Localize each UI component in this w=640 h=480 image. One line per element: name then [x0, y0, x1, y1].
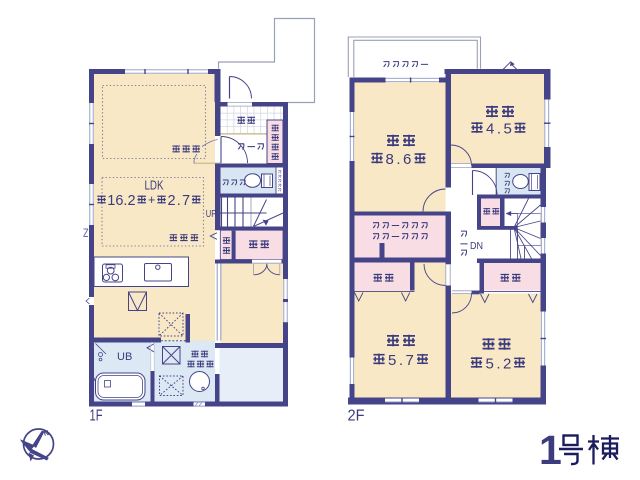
svg-text:2F: 2F	[348, 408, 365, 425]
svg-text:DN: DN	[470, 240, 483, 252]
svg-text:LDK: LDK	[145, 178, 164, 193]
svg-text:1: 1	[539, 427, 562, 473]
svg-text:5.7: 5.7	[388, 352, 416, 369]
svg-text:16.2: 16.2	[107, 193, 135, 209]
svg-text:UP: UP	[206, 208, 217, 220]
svg-text:UB: UB	[117, 351, 132, 363]
svg-text:4.5: 4.5	[486, 121, 514, 138]
svg-text:2.7: 2.7	[168, 193, 192, 209]
svg-text:+: +	[148, 193, 155, 207]
svg-text:8.6: 8.6	[386, 151, 414, 168]
svg-text:1F: 1F	[90, 408, 103, 425]
svg-text:5.2: 5.2	[486, 355, 514, 372]
